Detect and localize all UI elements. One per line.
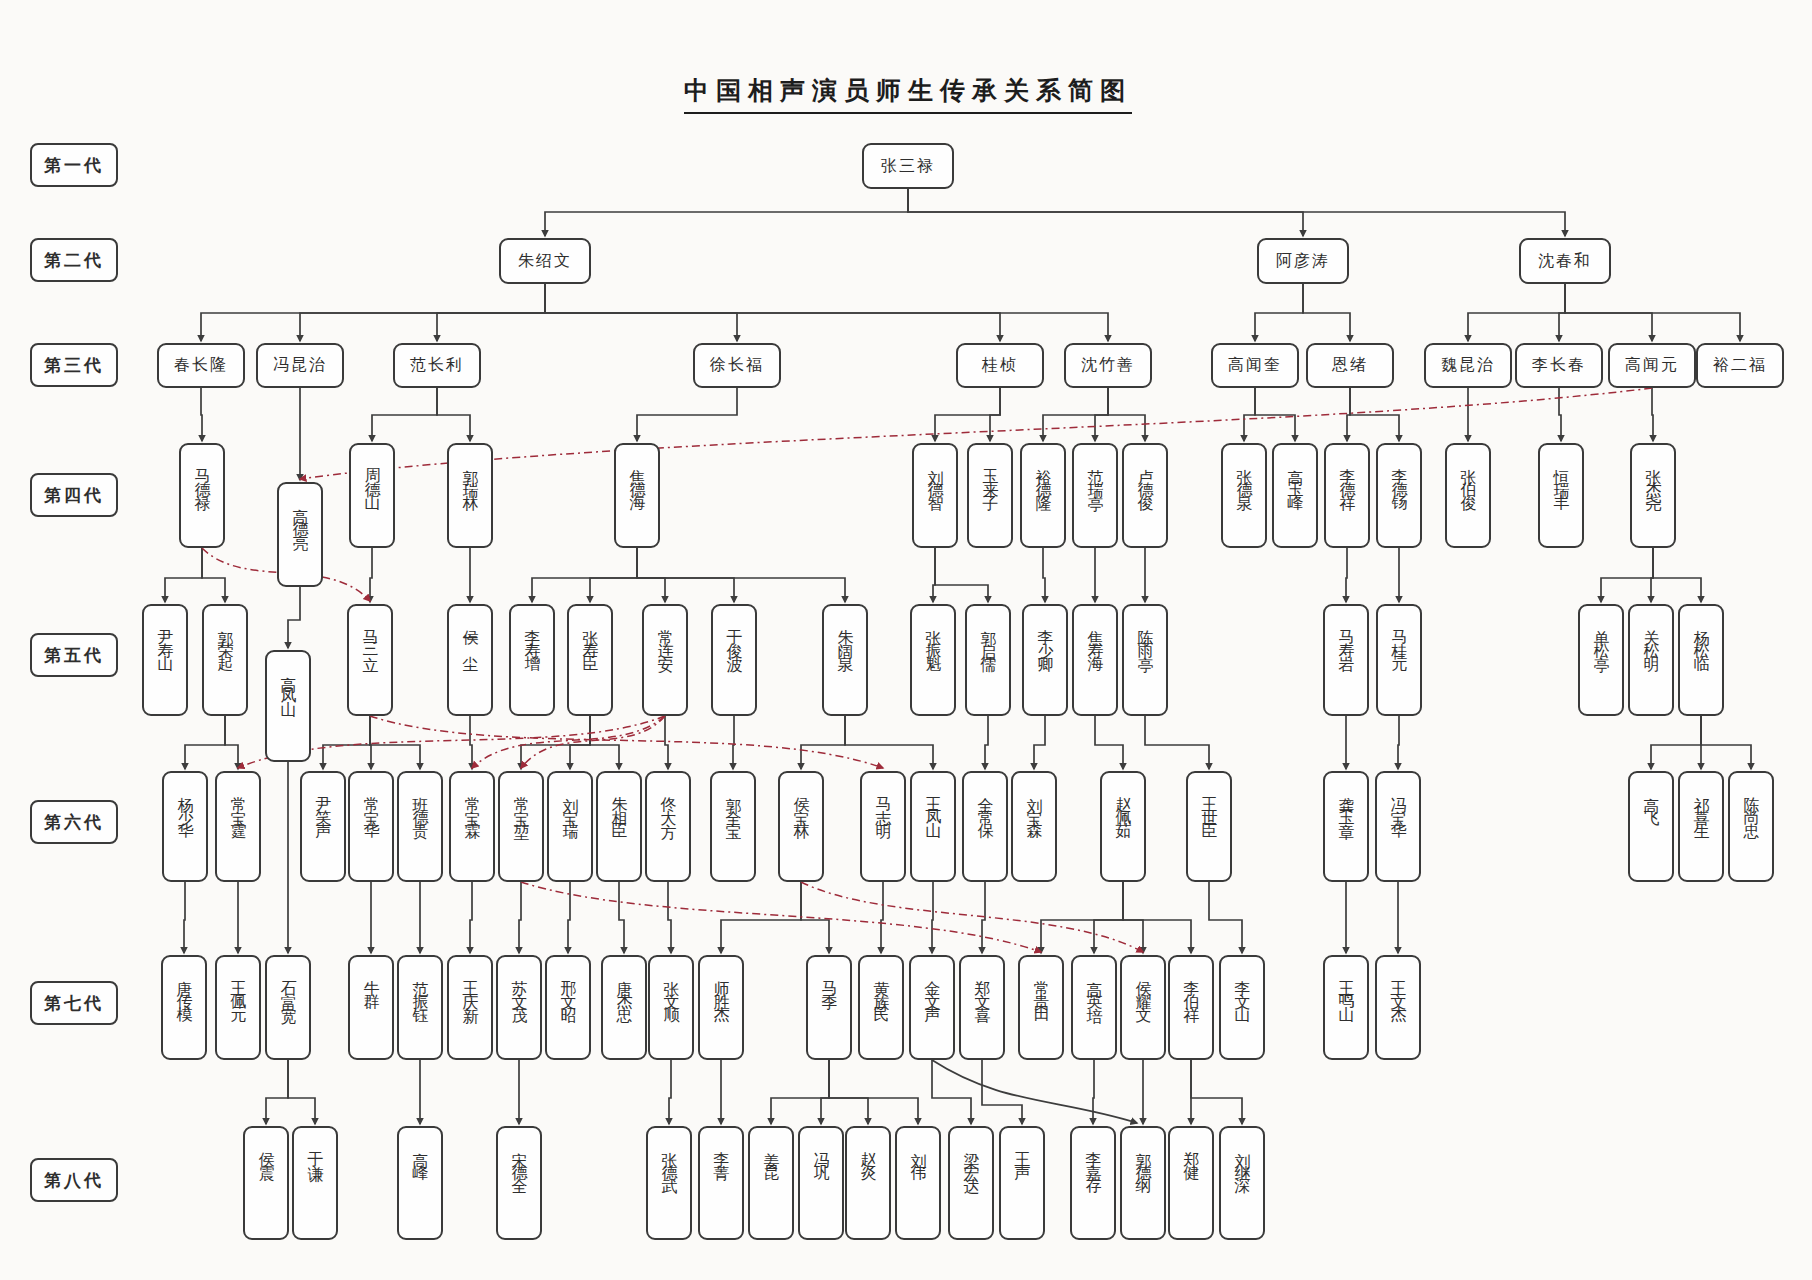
- person-node: 张杰尧: [1630, 443, 1676, 548]
- person-name: 宋德全: [509, 1128, 530, 1178]
- teacher-edge: [619, 882, 624, 953]
- teacher-edge: [908, 189, 1565, 236]
- teacher-edge: [1093, 1060, 1094, 1124]
- person-name: 高飞: [1641, 773, 1662, 810]
- person-node: 尹笑声: [300, 771, 346, 882]
- person-node: 张振魁: [910, 604, 956, 716]
- teacher-edge: [1303, 284, 1350, 341]
- person-name: 焦寿海: [1085, 606, 1106, 656]
- person-node: 宋德全: [496, 1126, 542, 1240]
- family-edge: [801, 882, 1143, 952]
- person-name: 赵佩茹: [1113, 773, 1134, 823]
- person-name: 陈尚忠: [1741, 773, 1762, 823]
- person-name: 冯宝华: [1388, 773, 1409, 823]
- person-name: 尹寿山: [155, 606, 176, 656]
- person-name: 郭启儒: [978, 606, 999, 656]
- generation-label: 第二代: [30, 238, 118, 282]
- teacher-edge: [1191, 1060, 1242, 1124]
- teacher-edge: [545, 189, 908, 236]
- person-name: 恒瑞丰: [1551, 445, 1572, 495]
- teacher-edge: [1601, 548, 1653, 602]
- teacher-edge: [935, 548, 988, 602]
- person-name: 杨松临: [1691, 606, 1712, 656]
- teacher-edge: [372, 388, 437, 441]
- person-node: 苏文茂: [496, 955, 542, 1060]
- person-name: 裕德隆: [1033, 445, 1054, 495]
- person-name: 王佩元: [228, 957, 249, 1007]
- teacher-edge: [821, 1060, 829, 1124]
- person-name: 梁宏达: [961, 1128, 982, 1178]
- person-node: 范振钰: [397, 955, 443, 1060]
- teacher-edge: [323, 716, 370, 769]
- teacher-edge: [519, 882, 521, 953]
- teacher-edge: [521, 716, 590, 769]
- person-node: 金文声: [909, 955, 955, 1060]
- teacher-edge: [185, 716, 225, 769]
- generation-label: 第五代: [30, 633, 118, 677]
- person-name: 马桂元: [1389, 606, 1410, 656]
- teacher-edge: [568, 882, 570, 953]
- person-node: 郭启儒: [965, 604, 1011, 716]
- teacher-edge: [470, 882, 472, 953]
- teacher-edge: [590, 716, 619, 769]
- person-node: 春长隆: [157, 343, 245, 388]
- person-name: 龚玉章: [1336, 773, 1357, 823]
- person-node: 姜昆: [748, 1126, 794, 1240]
- teacher-edge: [637, 548, 845, 602]
- teacher-edge: [637, 548, 734, 602]
- person-name: 刘继深: [1232, 1128, 1253, 1178]
- person-node: 高德亮: [277, 482, 323, 587]
- person-node: 马寿岩: [1323, 604, 1369, 716]
- person-name: 冯昆治: [273, 355, 327, 376]
- person-name: 高德亮: [290, 484, 311, 534]
- teacher-edge: [881, 882, 883, 953]
- person-node: 刘伟: [895, 1126, 941, 1240]
- person-node: 马三立: [347, 604, 393, 716]
- teacher-edge: [590, 548, 637, 602]
- person-name: 侯耀文: [1133, 957, 1154, 1007]
- person-name: 冯巩: [811, 1128, 832, 1165]
- person-name: 焦德海: [627, 445, 648, 495]
- person-node: 高闻奎: [1211, 343, 1299, 388]
- person-name: 沈春和: [1538, 251, 1592, 272]
- person-node: 常宝堃: [498, 771, 544, 882]
- person-node: 高凤山: [265, 650, 311, 762]
- teacher-edge: [1255, 284, 1303, 341]
- person-node: 李文山: [1219, 955, 1265, 1060]
- person-name: 高闻奎: [1228, 355, 1282, 376]
- person-name: 李德钖: [1389, 445, 1410, 495]
- person-node: 郑健: [1168, 1126, 1214, 1240]
- teacher-edge: [1244, 388, 1255, 441]
- person-name: 玉来子: [980, 445, 1001, 495]
- person-name: 魏昆治: [1441, 355, 1495, 376]
- teacher-edge: [1346, 548, 1347, 602]
- teacher-edge: [201, 388, 202, 441]
- person-node: 赵佩茹: [1100, 771, 1146, 882]
- person-node: 师胜杰: [698, 955, 744, 1060]
- family-edge: [370, 716, 883, 768]
- person-node: 常宝霖: [449, 771, 495, 882]
- person-node: 张文顺: [648, 955, 694, 1060]
- person-name: 恩绪: [1332, 355, 1368, 376]
- teacher-edge: [1651, 716, 1701, 769]
- teacher-edge: [829, 1060, 918, 1124]
- person-name: 范瑞亭: [1085, 445, 1106, 495]
- person-node: 马季: [806, 955, 852, 1060]
- person-node: 高飞: [1628, 771, 1674, 882]
- person-node: 冯昆治: [256, 343, 344, 388]
- person-node: 刘宝瑞: [547, 771, 593, 882]
- person-name: 高峰: [410, 1128, 431, 1165]
- teacher-edge: [801, 716, 845, 769]
- edges-layer: [0, 0, 1812, 1280]
- person-name: 郭瑞林: [460, 445, 481, 495]
- person-node: 郑文喜: [959, 955, 1005, 1060]
- person-name: 王文杰: [1388, 957, 1409, 1007]
- person-node: 全常保: [962, 771, 1008, 882]
- person-name: 周德山: [362, 445, 383, 495]
- person-node: 高闻元: [1608, 343, 1696, 388]
- person-node: 郭荣起: [202, 604, 248, 716]
- generation-label: 第三代: [30, 343, 118, 387]
- teacher-edge: [370, 548, 372, 602]
- person-name: 马三立: [360, 606, 381, 656]
- teacher-edge: [1095, 716, 1123, 769]
- person-node: 刘宝森: [1011, 771, 1057, 882]
- person-name: 马志明: [873, 773, 894, 823]
- person-name: 刘宝森: [1024, 773, 1045, 823]
- person-node: 陈尚忠: [1728, 771, 1774, 882]
- teacher-edge: [1108, 388, 1145, 441]
- family-edge: [521, 882, 1041, 952]
- person-node: 杨少华: [162, 771, 208, 882]
- person-node: 李德钖: [1376, 443, 1422, 548]
- teacher-edge: [1095, 388, 1108, 441]
- person-node: 侯耀文: [1120, 955, 1166, 1060]
- person-node: 佟大方: [645, 771, 691, 882]
- person-name: 阿彦涛: [1276, 251, 1330, 272]
- person-node: 陈雨亭: [1122, 604, 1168, 716]
- person-name: 马德禄: [192, 445, 213, 495]
- person-name: 唐杰忠: [614, 957, 635, 1007]
- person-name: 常连安: [655, 606, 676, 656]
- family-edge: [472, 716, 665, 768]
- teacher-edge: [184, 882, 185, 953]
- person-node: 王世臣: [1186, 771, 1232, 882]
- person-name: 李德祥: [1337, 445, 1358, 495]
- person-node: 沈春和: [1519, 238, 1611, 284]
- person-node: 于俊波: [711, 604, 757, 716]
- teacher-edge: [266, 1060, 288, 1124]
- teacher-edge: [665, 716, 668, 769]
- person-node: 梁宏达: [948, 1126, 994, 1240]
- person-node: 李嘉存: [1070, 1126, 1116, 1240]
- person-name: 祁喜生: [1691, 773, 1712, 823]
- generation-label: 第七代: [30, 981, 118, 1025]
- person-name: 徐长福: [710, 355, 764, 376]
- teacher-edge: [545, 284, 1108, 341]
- person-node: 王鸣山: [1323, 955, 1369, 1060]
- generation-label: 第八代: [30, 1158, 118, 1202]
- teacher-edge: [225, 716, 238, 769]
- person-name: 张伯俊: [1458, 445, 1479, 495]
- person-node: 尹寿山: [142, 604, 188, 716]
- person-name: 朱阔泉: [835, 606, 856, 656]
- person-name: 春长隆: [174, 355, 228, 376]
- person-name: 常宝霆: [228, 773, 249, 823]
- person-node: 赵炎: [845, 1126, 891, 1240]
- teacher-edge: [1034, 716, 1045, 769]
- teacher-edge: [1123, 882, 1143, 953]
- person-node: 单松亭: [1578, 604, 1624, 716]
- person-node: 郭瑞林: [447, 443, 493, 548]
- teacher-edge: [1559, 284, 1565, 341]
- teacher-edge: [932, 1060, 971, 1124]
- person-name: 李长春: [1532, 355, 1586, 376]
- person-name: 关松明: [1641, 606, 1662, 656]
- person-node: 黄族民: [858, 955, 904, 1060]
- person-node: 范瑞亭: [1072, 443, 1118, 548]
- person-name: 马寿岩: [1336, 606, 1357, 656]
- person-name: 王凤山: [923, 773, 944, 823]
- person-node: 王凤山: [910, 771, 956, 882]
- person-node: 阿彦涛: [1257, 238, 1349, 284]
- person-name: 刘伟: [908, 1128, 929, 1165]
- person-name: 李少卿: [1035, 606, 1056, 656]
- person-name: 李菁: [711, 1128, 732, 1165]
- person-name: 王鸣山: [1336, 957, 1357, 1007]
- person-node: 王文杰: [1375, 955, 1421, 1060]
- person-node: 徐长福: [693, 343, 781, 388]
- teacher-edge: [668, 882, 671, 953]
- person-name: 佟大方: [658, 773, 679, 823]
- teacher-edge: [1209, 882, 1242, 953]
- person-node: 裕德隆: [1020, 443, 1066, 548]
- person-node: 关松明: [1628, 604, 1674, 716]
- person-name: 郭全宝: [723, 773, 744, 823]
- person-node: 马志明: [860, 771, 906, 882]
- person-node: 朱相臣: [596, 771, 642, 882]
- person-name: 师胜杰: [711, 957, 732, 1007]
- person-name: 张德武: [659, 1128, 680, 1178]
- person-name: 郑文喜: [972, 957, 993, 1007]
- teacher-edge: [202, 548, 225, 602]
- person-node: 李菁: [698, 1126, 744, 1240]
- teacher-edge: [669, 1060, 671, 1124]
- person-name: 牛群: [361, 957, 382, 994]
- person-node: 周德山: [349, 443, 395, 548]
- person-node: 沈竹善: [1064, 343, 1152, 388]
- person-name: 张三禄: [881, 156, 935, 177]
- person-node: 卢德俊: [1122, 443, 1168, 548]
- mentor-curve-edge: [932, 1060, 1137, 1123]
- teacher-edge: [801, 882, 829, 953]
- person-name: 李嘉存: [1083, 1128, 1104, 1178]
- person-node: 郭全宝: [710, 771, 756, 882]
- person-node: 高英培: [1071, 955, 1117, 1060]
- person-node: 唐传模: [161, 955, 207, 1060]
- teacher-edge: [1652, 388, 1653, 441]
- person-name: 石富宽: [278, 957, 299, 1007]
- teacher-edge: [1653, 548, 1701, 602]
- person-name: 王声: [1012, 1128, 1033, 1165]
- person-node: 张伯俊: [1445, 443, 1491, 548]
- person-name: 高玉峰: [1285, 445, 1306, 495]
- teacher-edge: [733, 716, 734, 769]
- teacher-edge: [1468, 284, 1565, 341]
- person-node: 高玉峰: [1272, 443, 1318, 548]
- person-name: 高英培: [1084, 957, 1105, 1007]
- teacher-edge: [721, 882, 801, 953]
- person-node: 范长利: [393, 343, 481, 388]
- person-node: 张寿臣: [567, 604, 613, 716]
- person-name: 范长利: [410, 355, 464, 376]
- person-name: 姜昆: [761, 1128, 782, 1165]
- teacher-edge: [932, 882, 933, 953]
- person-name: 常宝华: [361, 773, 382, 823]
- teacher-edge: [1350, 388, 1399, 441]
- person-node: 马德禄: [179, 443, 225, 548]
- teacher-edge: [1145, 716, 1209, 769]
- person-node: 张德武: [646, 1126, 692, 1240]
- teacher-edge: [437, 388, 470, 441]
- person-name: 常宝霖: [462, 773, 483, 823]
- teacher-edge: [985, 716, 988, 769]
- person-node: 祁喜生: [1678, 771, 1724, 882]
- person-name: 李寿增: [522, 606, 543, 656]
- lineage-chart: 中国相声演员师生传承关系简图 第一代张三禄第二代朱绍文阿彦涛沈春和第三代春长隆冯…: [0, 0, 1812, 1280]
- person-node: 张三禄: [862, 143, 954, 189]
- person-name: 张振魁: [923, 606, 944, 656]
- teacher-edge: [1094, 882, 1123, 953]
- teacher-edge: [1123, 882, 1191, 953]
- person-node: 邢文昭: [545, 955, 591, 1060]
- person-name: 王世臣: [1199, 773, 1220, 823]
- person-node: 焦德海: [614, 443, 660, 548]
- person-name: 卢德俊: [1135, 445, 1156, 495]
- person-node: 常连安: [642, 604, 688, 716]
- teacher-edge: [1559, 388, 1561, 441]
- teacher-edge: [532, 548, 637, 602]
- generation-label: 第一代: [30, 143, 118, 187]
- person-name: 高凤山: [278, 652, 299, 702]
- person-node: 常贵田: [1018, 955, 1064, 1060]
- person-name: 裕二福: [1713, 355, 1767, 376]
- person-node: 张德泉: [1221, 443, 1267, 548]
- person-node: 裕二福: [1696, 343, 1784, 388]
- person-node: 焦寿海: [1072, 604, 1118, 716]
- person-name: 班德贵: [410, 773, 431, 823]
- person-node: 桂桢: [956, 343, 1044, 388]
- teacher-edge: [570, 716, 590, 769]
- person-name: 邢文昭: [558, 957, 579, 1007]
- teacher-edge: [1043, 548, 1045, 602]
- person-name: 朱绍文: [518, 251, 572, 272]
- teacher-edge: [1041, 882, 1123, 953]
- person-node: 刘继深: [1219, 1126, 1265, 1240]
- person-name: 赵炎: [858, 1128, 879, 1165]
- person-name: 常宝堃: [511, 773, 532, 823]
- teacher-edge: [288, 587, 300, 648]
- person-node: 玉来子: [967, 443, 1013, 548]
- person-name: 李文山: [1232, 957, 1253, 1007]
- person-name: 于俊波: [724, 606, 745, 656]
- person-name: 全常保: [975, 773, 996, 823]
- person-node: 常宝霆: [215, 771, 261, 882]
- person-name: 刘宝瑞: [560, 773, 581, 823]
- person-node: 常宝华: [348, 771, 394, 882]
- person-name: 常贵田: [1031, 957, 1052, 1007]
- person-node: 侯宝林: [778, 771, 824, 882]
- person-name: 马季: [819, 957, 840, 994]
- person-name: 苏文茂: [509, 957, 530, 1007]
- person-node: 王庆新: [447, 955, 493, 1060]
- person-name: 王庆新: [460, 957, 481, 1007]
- teacher-edge: [1255, 388, 1295, 441]
- person-node: 郭德纲: [1120, 1126, 1166, 1240]
- teacher-edge: [1701, 716, 1751, 769]
- teacher-edge: [637, 388, 737, 441]
- person-name: 侯震: [256, 1128, 277, 1165]
- teacher-edge: [637, 548, 665, 602]
- person-node: 朱绍文: [499, 238, 591, 284]
- person-name: 朱相臣: [609, 773, 630, 823]
- person-node: 龚玉章: [1323, 771, 1369, 882]
- person-node: 班德贵: [397, 771, 443, 882]
- teacher-edge: [829, 1060, 868, 1124]
- teacher-edge: [990, 388, 1000, 441]
- teacher-edge: [1398, 716, 1399, 769]
- person-node: 石富宽: [265, 955, 311, 1060]
- person-node: 于谦: [292, 1126, 338, 1240]
- person-node: 侯震: [243, 1126, 289, 1240]
- person-name: 于谦: [305, 1128, 326, 1165]
- person-node: 李少卿: [1022, 604, 1068, 716]
- person-name: 侯宝林: [791, 773, 812, 823]
- person-node: 马桂元: [1376, 604, 1422, 716]
- person-name: 黄族民: [871, 957, 892, 1007]
- person-name: 唐传模: [174, 957, 195, 1007]
- teacher-edge: [437, 284, 545, 341]
- person-name: 桂桢: [982, 355, 1018, 376]
- person-node: 朱阔泉: [822, 604, 868, 716]
- person-node: 恩绪: [1306, 343, 1394, 388]
- person-name: 张德泉: [1234, 445, 1255, 495]
- person-node: 冯巩: [798, 1126, 844, 1240]
- person-node: 高峰: [397, 1126, 443, 1240]
- person-name: 张杰尧: [1643, 445, 1664, 495]
- person-node: 牛群: [348, 955, 394, 1060]
- person-name: 范振钰: [410, 957, 431, 1007]
- person-node: 侯一尘: [447, 604, 493, 716]
- person-name: 刘德智: [925, 445, 946, 495]
- person-name: 郭荣起: [215, 606, 236, 656]
- person-node: 李伯祥: [1168, 955, 1214, 1060]
- person-node: 恒瑞丰: [1538, 443, 1584, 548]
- person-node: 李长春: [1515, 343, 1603, 388]
- person-node: 杨松临: [1678, 604, 1724, 716]
- person-name: 金文声: [922, 957, 943, 1007]
- person-name: 郭德纲: [1133, 1128, 1154, 1178]
- generation-label: 第六代: [30, 800, 118, 844]
- person-node: 唐杰忠: [601, 955, 647, 1060]
- person-name: 侯一尘: [460, 606, 481, 656]
- person-name: 高闻元: [1625, 355, 1679, 376]
- person-node: 王声: [999, 1126, 1045, 1240]
- teacher-edge: [165, 548, 202, 602]
